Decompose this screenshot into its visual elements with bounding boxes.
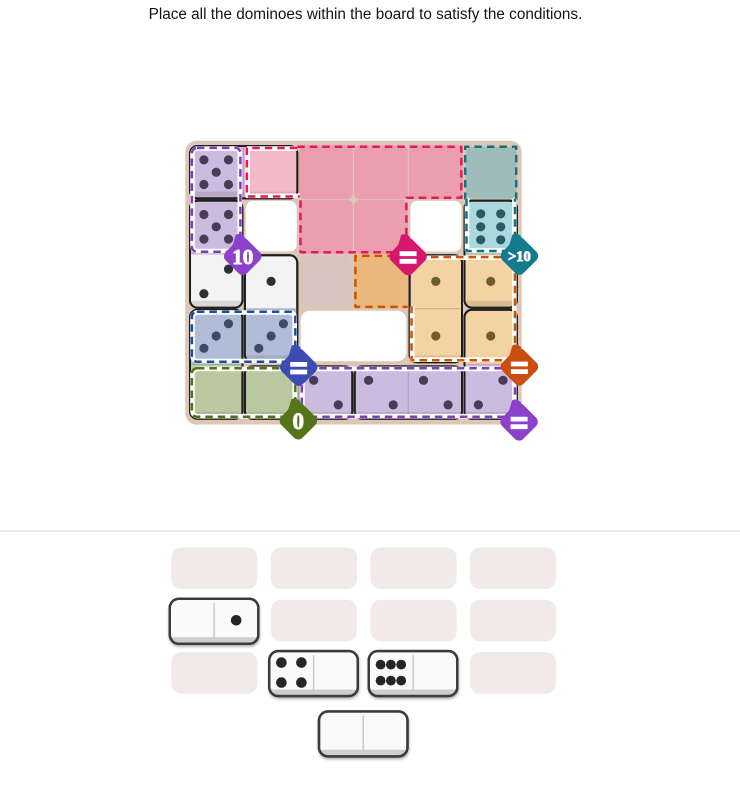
svg-text:0: 0 <box>293 409 305 434</box>
svg-text:>10: >10 <box>508 249 531 265</box>
svg-text:10: 10 <box>232 245 253 269</box>
